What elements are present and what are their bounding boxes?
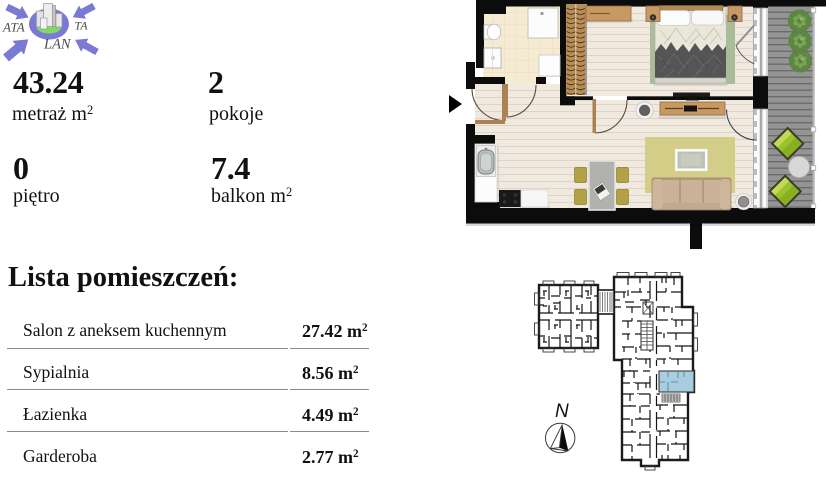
svg-text:TA: TA [75,19,89,33]
svg-text:LAN: LAN [43,37,72,53]
svg-text:ATA: ATA [2,20,25,35]
svg-text:N: N [555,401,569,422]
